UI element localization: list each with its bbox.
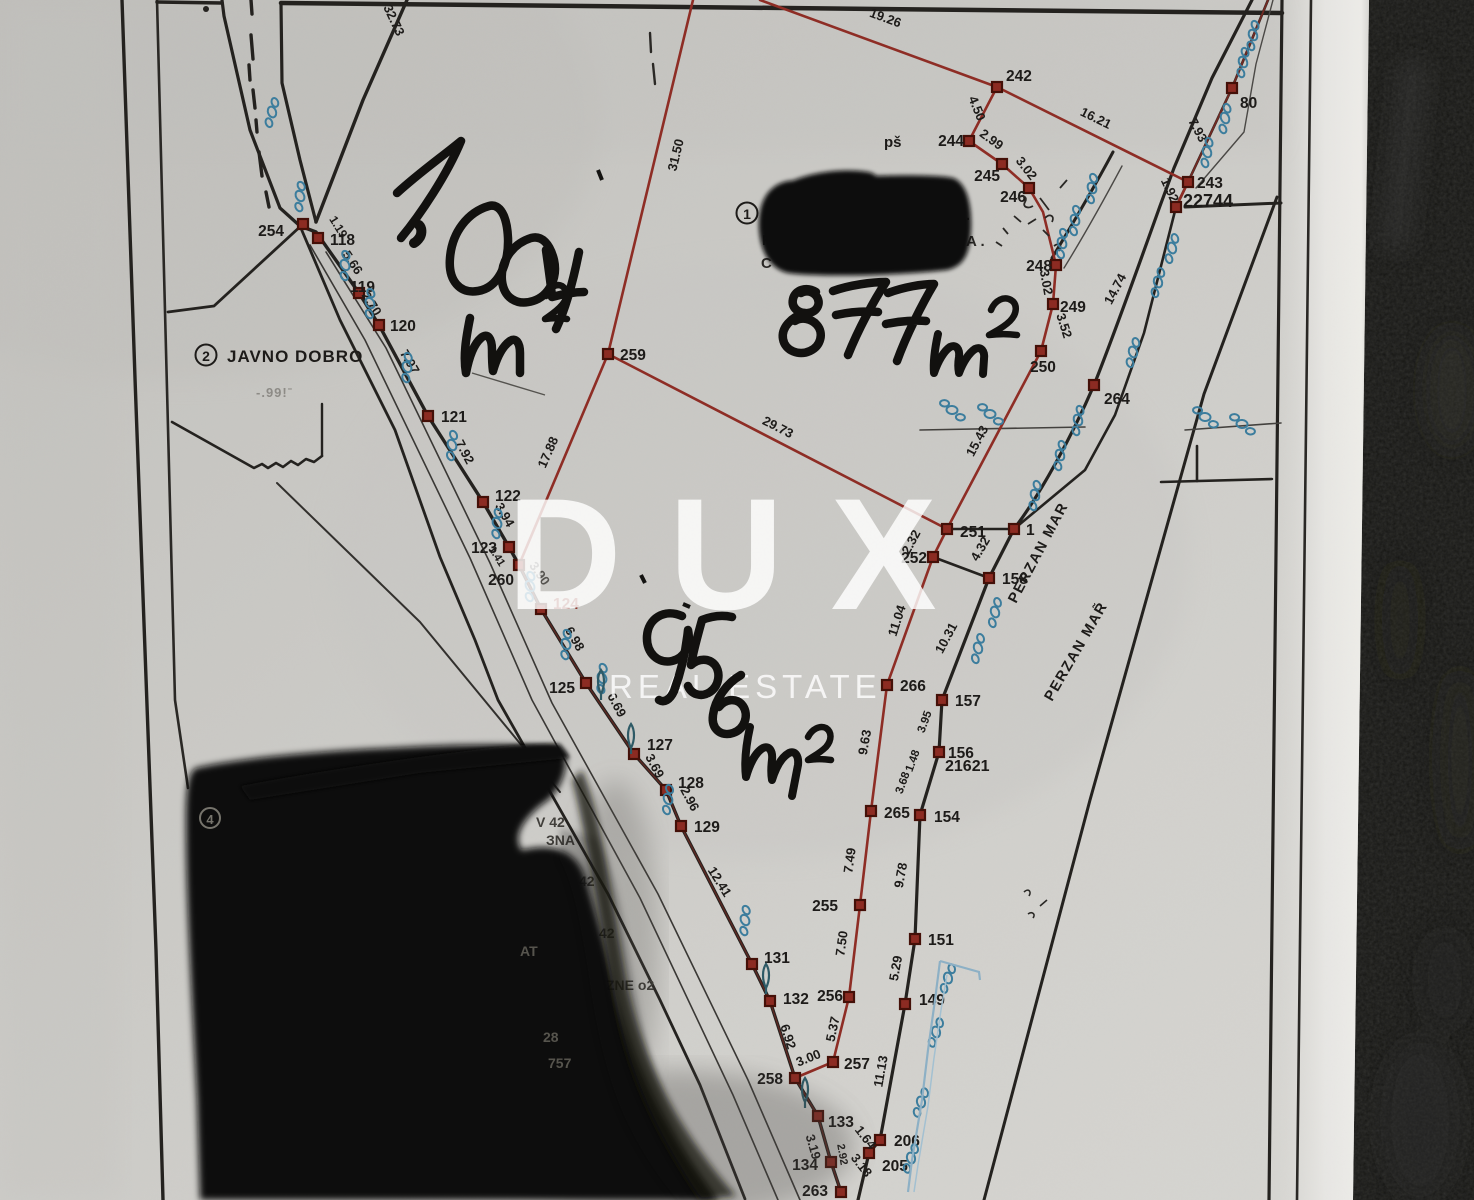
svg-text:244: 244: [938, 133, 964, 150]
svg-text:129: 129: [694, 819, 720, 836]
svg-text:121: 121: [441, 409, 467, 426]
svg-text:157: 157: [955, 693, 981, 710]
svg-text:1: 1: [1026, 522, 1035, 539]
svg-text:256: 256: [817, 988, 843, 1005]
svg-text:264: 264: [1104, 391, 1130, 408]
svg-text:2: 2: [202, 348, 210, 364]
svg-text:131: 131: [764, 950, 790, 967]
svg-text:265: 265: [884, 805, 910, 822]
svg-text:266: 266: [900, 678, 926, 695]
svg-text:259: 259: [620, 347, 646, 364]
svg-text:246: 246: [1000, 189, 1026, 206]
svg-text:AT: AT: [520, 943, 538, 959]
svg-text:4: 4: [206, 812, 214, 827]
svg-text:22744: 22744: [1183, 191, 1233, 211]
svg-text:JAVNO DOBRO: JAVNO DOBRO: [227, 347, 363, 366]
svg-text:pš: pš: [884, 134, 902, 151]
svg-text:120: 120: [390, 318, 416, 335]
svg-text:DUX: DUX: [507, 465, 984, 643]
svg-text:243: 243: [1197, 175, 1223, 192]
svg-text:127: 127: [647, 737, 673, 754]
svg-text:125: 125: [549, 680, 575, 697]
svg-text:V 42: V 42: [536, 814, 565, 830]
svg-text:REAL ESTATE: REAL ESTATE: [609, 668, 882, 705]
svg-text:250: 250: [1030, 359, 1056, 376]
svg-text:254: 254: [258, 223, 284, 240]
svg-text:151: 151: [928, 932, 954, 949]
svg-text:1: 1: [743, 206, 751, 222]
svg-text:-.99!ˉ: -.99!ˉ: [256, 385, 293, 400]
svg-text:257: 257: [844, 1056, 870, 1073]
svg-text:245: 245: [974, 168, 1000, 185]
svg-text:757: 757: [548, 1055, 572, 1071]
svg-text:154: 154: [934, 809, 960, 826]
svg-text:80: 80: [1240, 95, 1257, 112]
svg-text:242: 242: [1006, 68, 1032, 85]
svg-text:132: 132: [783, 991, 809, 1008]
svg-text:21621: 21621: [945, 758, 990, 775]
svg-text:28: 28: [543, 1029, 559, 1045]
svg-text:255: 255: [812, 898, 838, 915]
